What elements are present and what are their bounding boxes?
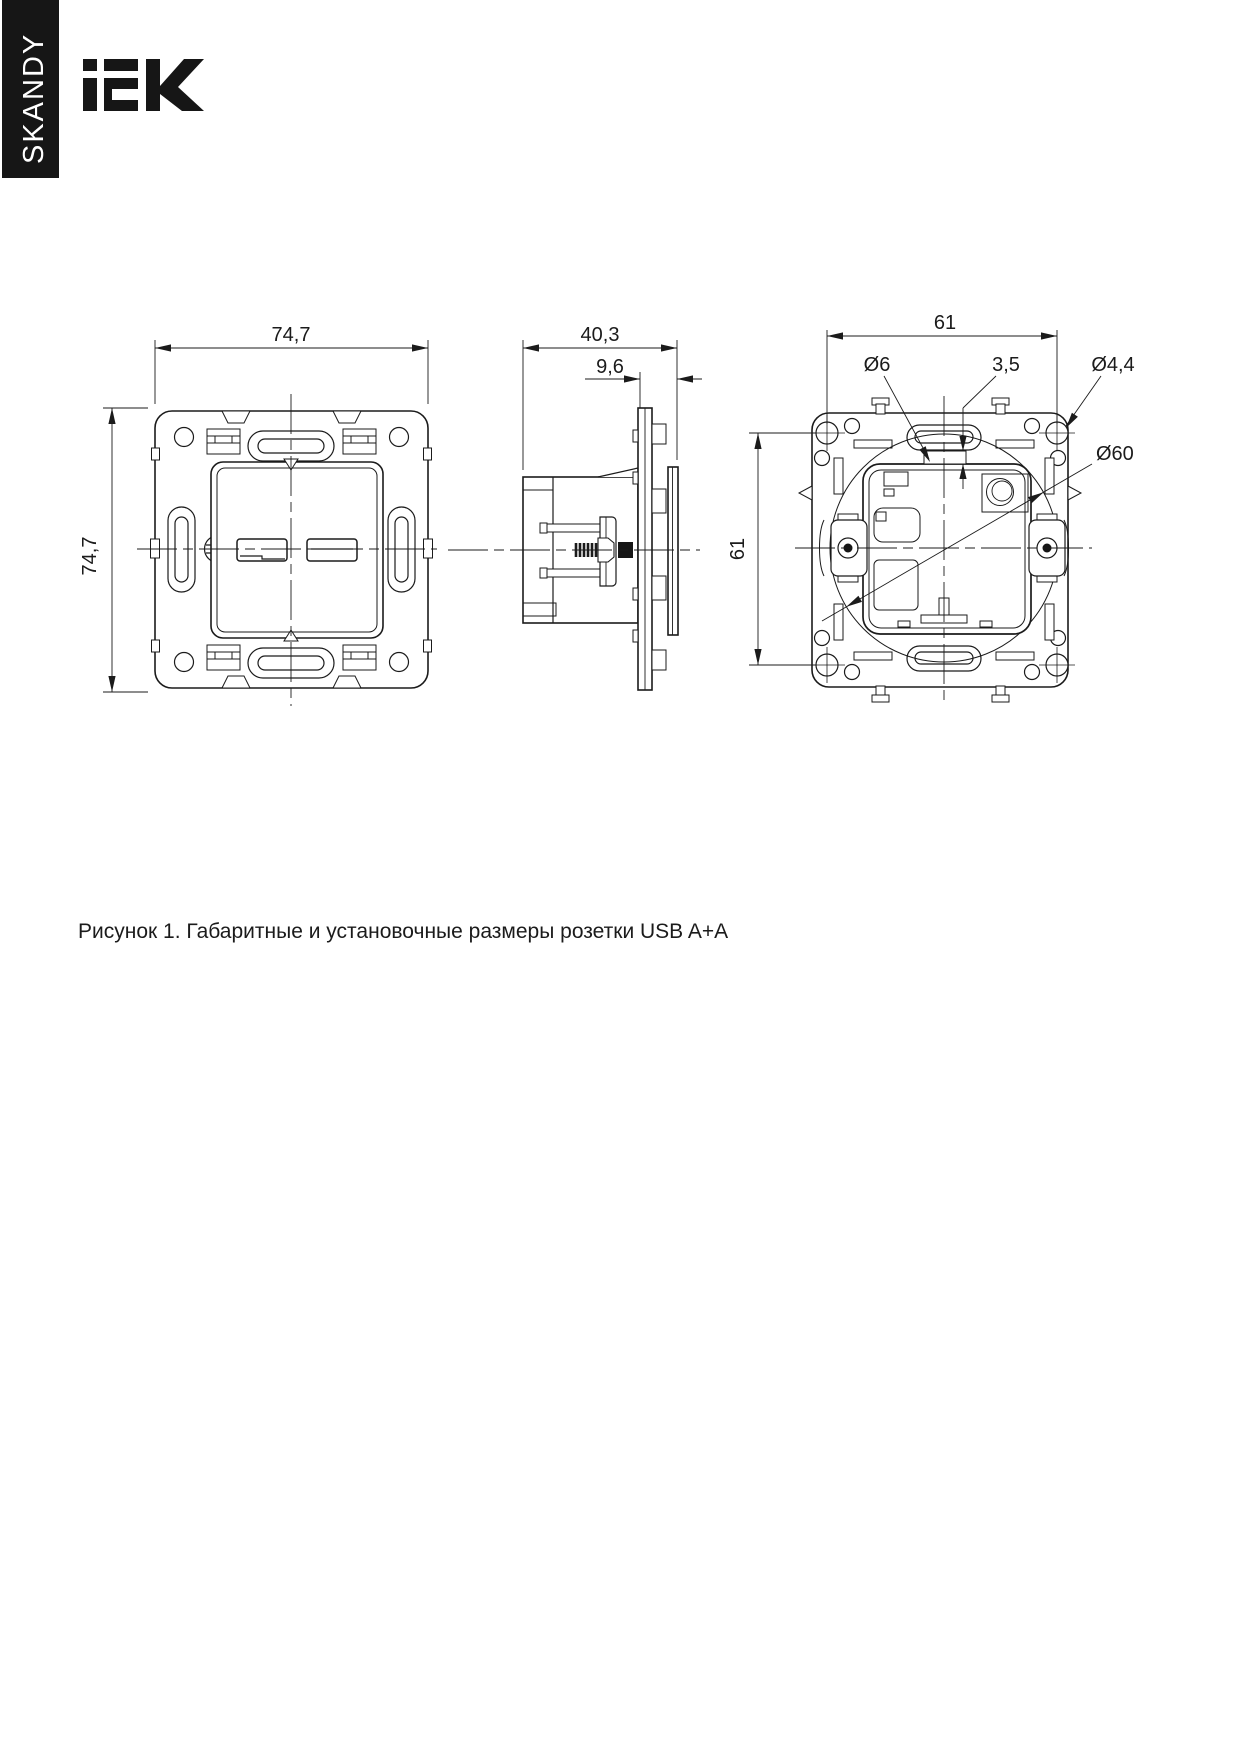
back-height-dim-label: 61: [727, 538, 749, 560]
page-canvas: SKANDY: [0, 0, 1239, 1746]
front-height-dim-label: 74,7: [79, 537, 101, 576]
back-tab-dim-label: 3,5: [992, 354, 1020, 376]
back-width-dim-label: 61: [934, 312, 956, 334]
series-banner-label: SKANDY: [18, 33, 50, 164]
side-view-drawing: [448, 408, 700, 690]
front-view-drawing: [137, 394, 437, 706]
back-mount-circle-dim-label: Ø60: [1096, 443, 1134, 465]
back-hole-dim-label: Ø6: [864, 354, 891, 376]
side-depth-dim-label: 40,3: [581, 324, 620, 346]
usb-port-right: [307, 539, 357, 561]
side-front-depth-dim-label: 9,6: [596, 356, 624, 378]
back-screw-hole-dim-label: Ø4,4: [1091, 354, 1134, 376]
usb-port-left: [237, 539, 287, 561]
iek-logo-icon: [83, 59, 204, 111]
front-width-dim-label: 74,7: [272, 324, 311, 346]
side-view-dimensions: 40,3 9,6: [523, 324, 702, 470]
figure-caption: Рисунок 1. Габаритные и установочные раз…: [78, 920, 728, 943]
series-banner: SKANDY: [2, 0, 59, 178]
